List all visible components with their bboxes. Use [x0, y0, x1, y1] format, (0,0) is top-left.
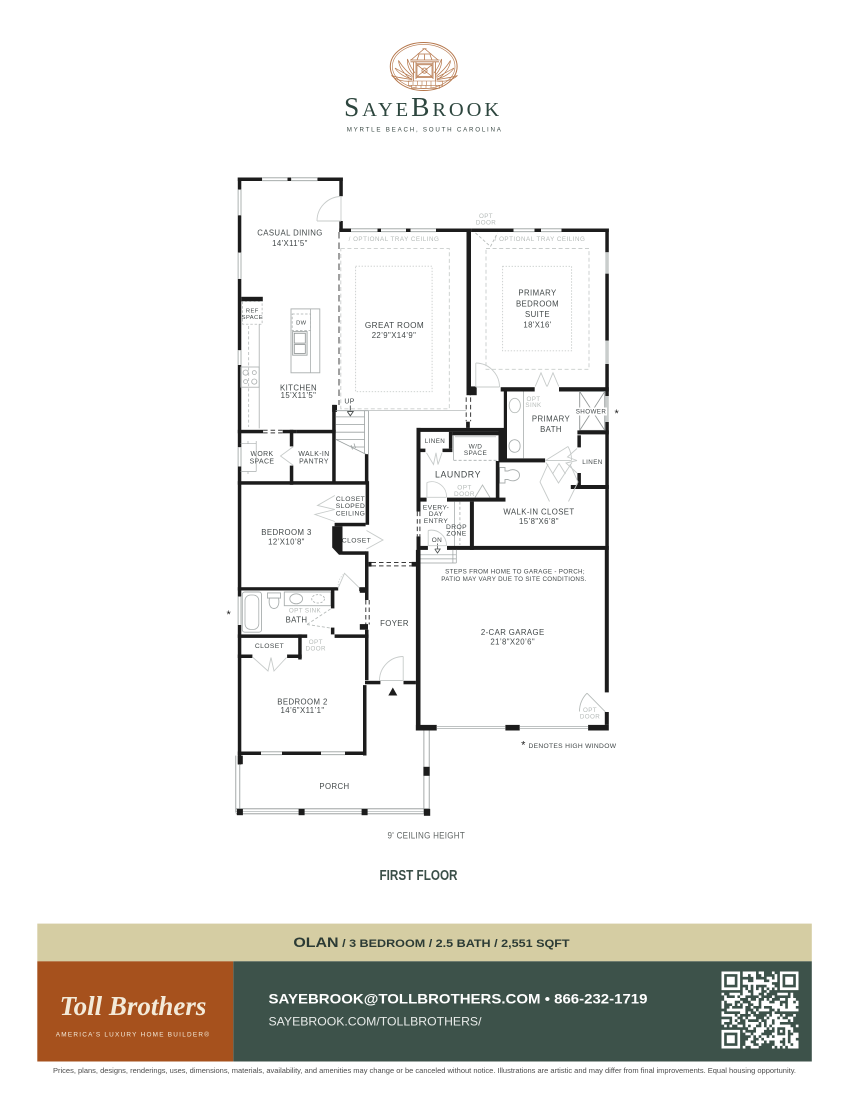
- svg-text:OPT SINK: OPT SINK: [289, 607, 322, 614]
- svg-text:/ OPTIONAL TRAY CEILING: / OPTIONAL TRAY CEILING: [495, 236, 586, 243]
- svg-text:21’8"X20’6": 21’8"X20’6": [490, 638, 535, 647]
- svg-text:DW: DW: [296, 321, 307, 327]
- svg-text:PANTRY: PANTRY: [299, 458, 329, 465]
- svg-text:ON: ON: [432, 537, 442, 544]
- svg-text:BEDROOM: BEDROOM: [516, 299, 559, 308]
- svg-text:15'X11'5": 15'X11'5": [281, 391, 317, 400]
- svg-text:14'X11'5": 14'X11'5": [272, 239, 308, 248]
- svg-text:SPACE: SPACE: [464, 450, 488, 457]
- svg-text:FOYER: FOYER: [380, 619, 409, 628]
- svg-text:SPACE: SPACE: [242, 315, 263, 321]
- svg-text:DOOR: DOOR: [454, 491, 475, 498]
- svg-text:ENTRY: ENTRY: [424, 518, 449, 525]
- svg-text:CLOSET: CLOSET: [342, 538, 371, 545]
- svg-text:14’6"X11’1": 14’6"X11’1": [280, 706, 324, 715]
- svg-text:CLOSET: CLOSET: [255, 643, 284, 650]
- svg-text:15’8"X6’8": 15’8"X6’8": [519, 517, 559, 526]
- svg-text:LAUNDRY: LAUNDRY: [435, 470, 481, 480]
- svg-text:PRIMARY: PRIMARY: [532, 414, 571, 423]
- svg-text:GREAT ROOM: GREAT ROOM: [365, 321, 424, 330]
- svg-text:22’9"X14’9": 22’9"X14’9": [372, 331, 417, 340]
- svg-text:MYRTLE BEACH, SOUTH CAROLINA: MYRTLE BEACH, SOUTH CAROLINA: [347, 126, 503, 133]
- svg-text:LINEN: LINEN: [582, 459, 602, 466]
- svg-text:SAYEBROOK@TOLLBROTHERS.COM • 8: SAYEBROOK@TOLLBROTHERS.COM • 866-232-171…: [269, 992, 648, 1007]
- svg-text:PATIO MAY VARY DUE TO SITE CON: PATIO MAY VARY DUE TO SITE CONDITIONS.: [441, 576, 586, 583]
- svg-text:/ OPTIONAL TRAY CEILING: / OPTIONAL TRAY CEILING: [349, 236, 440, 243]
- svg-text:SINK: SINK: [525, 402, 542, 409]
- svg-text:12’X10’8": 12’X10’8": [268, 538, 305, 547]
- svg-text:PORCH: PORCH: [319, 782, 349, 791]
- svg-text:UP: UP: [344, 399, 354, 406]
- svg-text:*: *: [226, 609, 231, 621]
- svg-text:SPACE: SPACE: [250, 458, 275, 465]
- svg-text:OLAN / 3 BEDROOM / 2.5 BATH /: OLAN / 3 BEDROOM / 2.5 BATH / 2,551 SQFT: [293, 935, 570, 951]
- svg-text:BEDROOM 3: BEDROOM 3: [261, 528, 311, 537]
- svg-text:SAYEBROOK.COM/TOLLBROTHERS/: SAYEBROOK.COM/TOLLBROTHERS/: [269, 1016, 483, 1029]
- svg-text:DOOR: DOOR: [306, 645, 326, 652]
- svg-text:REF: REF: [246, 309, 259, 315]
- svg-text:DOOR: DOOR: [476, 219, 496, 226]
- svg-text:CASUAL DINING: CASUAL DINING: [257, 229, 323, 238]
- svg-text:LINEN: LINEN: [425, 438, 445, 445]
- svg-text:BEDROOM 2: BEDROOM 2: [277, 698, 327, 707]
- svg-text:AMERICA’S LUXURY HOME BUILDER®: AMERICA’S LUXURY HOME BUILDER®: [56, 1031, 210, 1039]
- svg-text:DOOR: DOOR: [580, 713, 600, 720]
- svg-text:*: *: [521, 740, 526, 752]
- svg-text:Toll Brothers: Toll Brothers: [60, 991, 207, 1021]
- svg-text:STEPS FROM HOME TO GARAGE - PO: STEPS FROM HOME TO GARAGE - PORCH;: [445, 569, 585, 576]
- svg-text:9' CEILING HEIGHT: 9' CEILING HEIGHT: [388, 831, 466, 841]
- svg-text:DENOTES HIGH WINDOW: DENOTES HIGH WINDOW: [529, 743, 617, 750]
- svg-text:CLOSET: CLOSET: [336, 496, 365, 503]
- svg-text:FIRST FLOOR: FIRST FLOOR: [380, 868, 459, 884]
- svg-text:2-CAR GARAGE: 2-CAR GARAGE: [481, 628, 545, 637]
- svg-text:SUITE: SUITE: [525, 310, 550, 319]
- svg-text:BATH: BATH: [286, 615, 308, 624]
- svg-text:SLOPED: SLOPED: [336, 503, 366, 510]
- svg-text:Prices, plans, designs, render: Prices, plans, designs, renderings, uses…: [53, 1066, 796, 1075]
- svg-text:*: *: [614, 408, 619, 420]
- svg-text:PRIMARY: PRIMARY: [518, 289, 557, 298]
- svg-text:ZONE: ZONE: [446, 531, 466, 538]
- svg-text:SHOWER: SHOWER: [576, 409, 607, 416]
- svg-text:WALK-IN CLOSET: WALK-IN CLOSET: [503, 507, 574, 516]
- svg-text:WALK-IN: WALK-IN: [298, 451, 329, 458]
- svg-text:BATH: BATH: [540, 425, 562, 434]
- svg-text:WORK: WORK: [250, 451, 273, 458]
- svg-text:CEILING: CEILING: [336, 511, 366, 518]
- svg-text:18'X16': 18'X16': [523, 321, 551, 330]
